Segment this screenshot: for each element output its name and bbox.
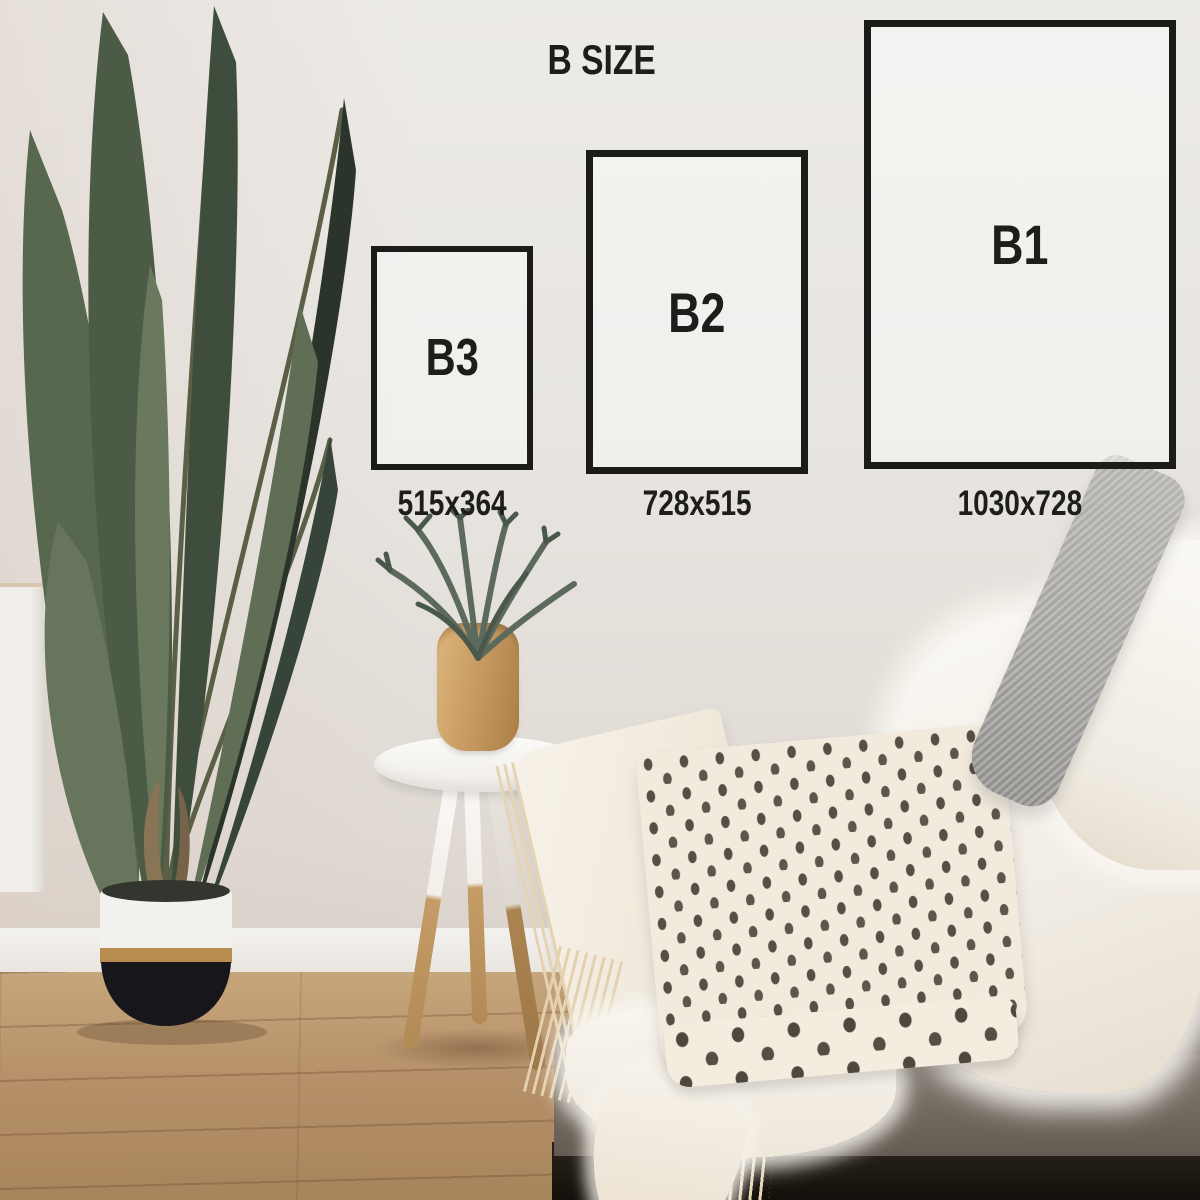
bird-of-paradise-plant: [0, 0, 360, 1060]
size-box-b2-label: B2: [661, 280, 733, 345]
poster-size-mockup: B SIZE B3 515x364 B2 728x515 B1 1030x728: [0, 0, 1200, 1200]
fern-plant: [360, 508, 600, 668]
size-box-b1: B1: [864, 20, 1176, 469]
size-box-b2-dimensions: 728x515: [567, 484, 827, 524]
chart-title: B SIZE: [452, 36, 752, 84]
size-box-b2: B2: [586, 150, 808, 474]
size-box-b1-label: B1: [984, 212, 1056, 277]
patterned-throw-blanket: [635, 723, 1029, 1064]
size-box-b3-label: B3: [419, 328, 485, 388]
